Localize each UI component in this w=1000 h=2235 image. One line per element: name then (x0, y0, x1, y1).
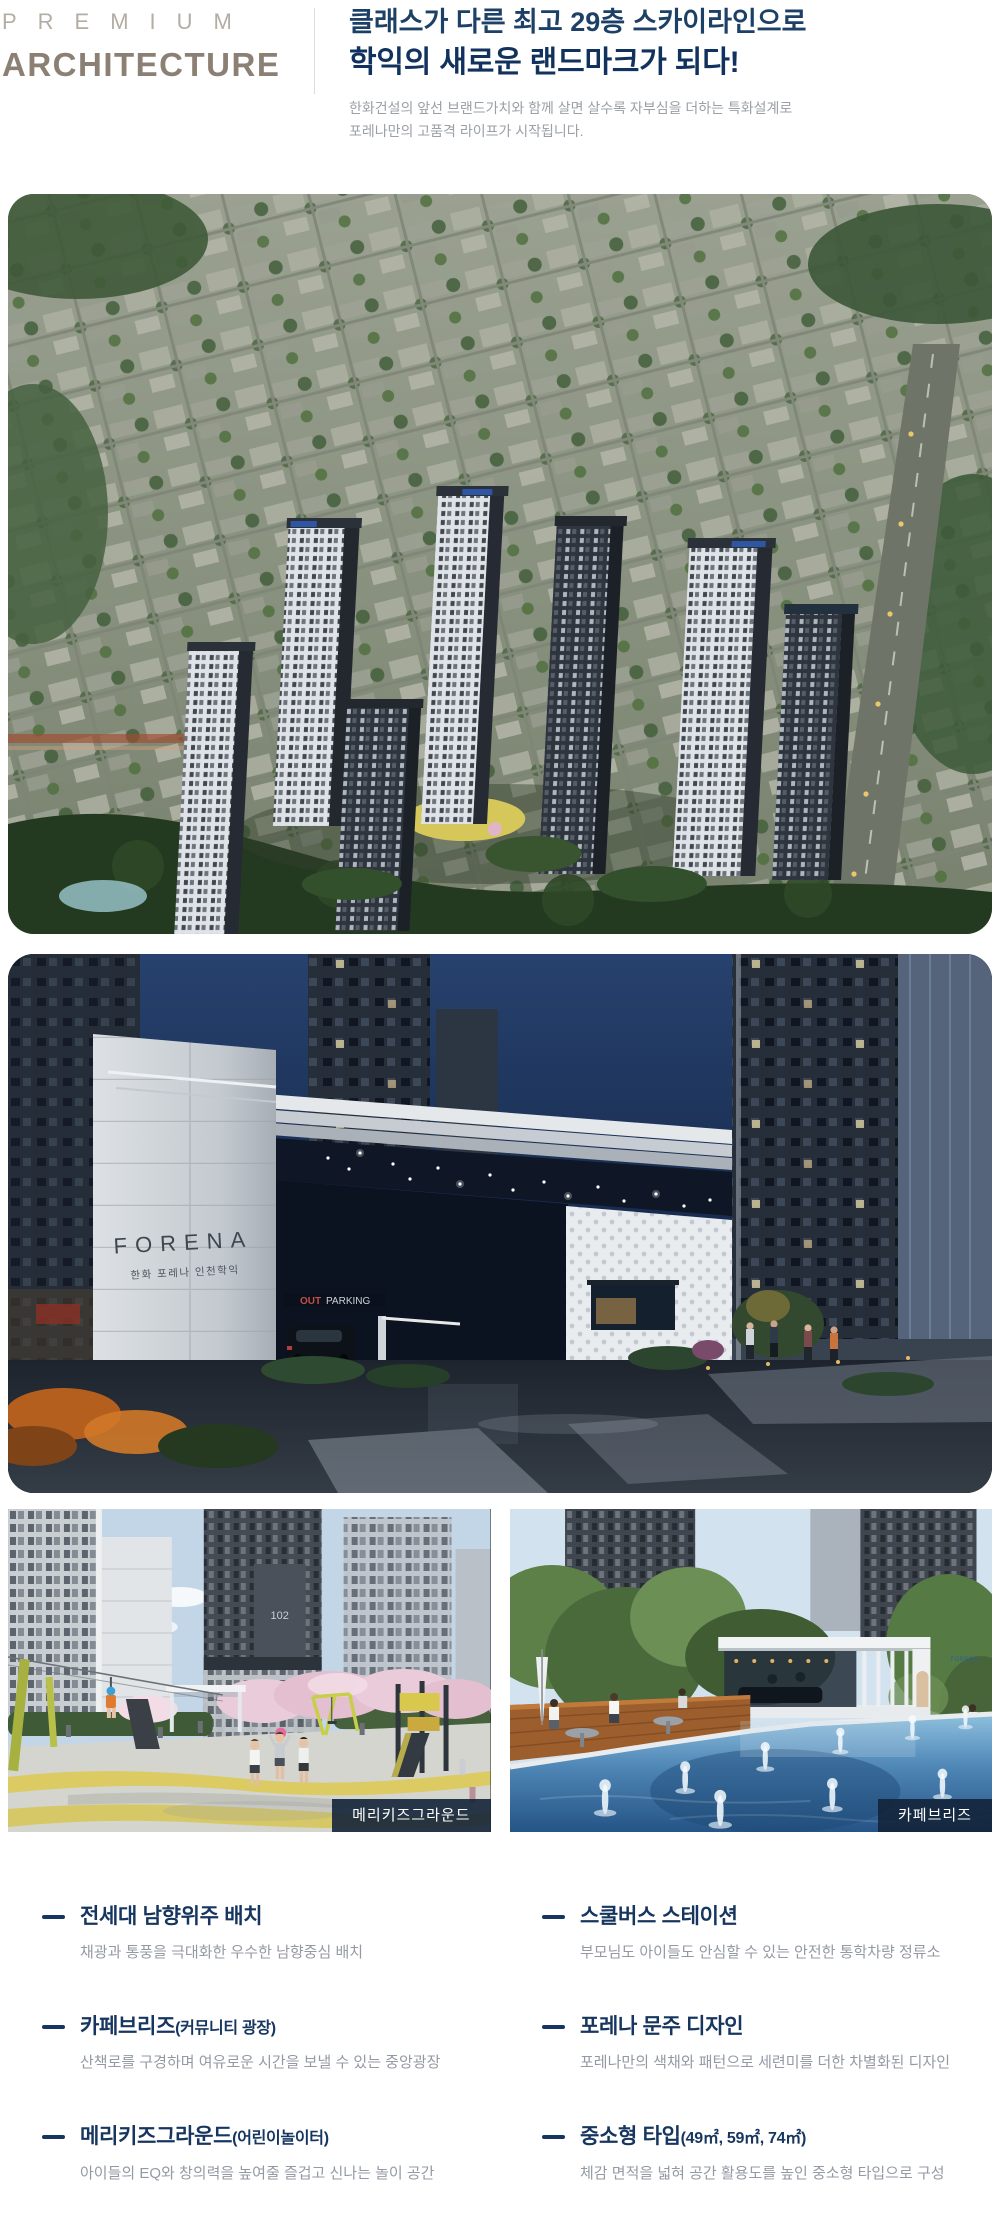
photo-pair-row: 102 (8, 1509, 992, 1832)
dash-icon (542, 1915, 565, 1919)
gate-scene-illustration: OUT PARKING FORENA 한화 포레나 인천학익 (8, 954, 992, 1493)
feature-item-school-bus-station: 스쿨버스 스테이션 부모님도 아이들도 안심할 수 있는 안전한 통학차량 정류… (542, 1904, 1000, 1963)
feature-description: 채광과 통풍을 극대화한 우수한 남향중심 배치 (80, 1942, 363, 1963)
pool-badge: 카페브리즈 (878, 1799, 992, 1832)
aerial-scene-illustration (8, 194, 992, 934)
feature-item-forena-gate-design: 포레나 문주 디자인 포레나만의 색채와 패턴으로 세련미를 더한 차별화된 디… (542, 2014, 1000, 2073)
feature-title-text: 스쿨버스 스테이션 (580, 1905, 738, 1928)
feature-column-left: 전세대 남향위주 배치 채광과 통풍을 극대화한 우수한 남향중심 배치 카페브… (0, 1904, 500, 2235)
playground-badge: 메리키즈그라운드 (332, 1799, 490, 1832)
premium-label: PREMIUM (2, 6, 314, 33)
tower-number-sign: 102 (271, 1610, 289, 1622)
feature-title-text: 카페브리즈 (80, 2015, 175, 2038)
feature-title-text: 포레나 문주 디자인 (580, 2015, 743, 2038)
feature-description: 체감 면적을 넓혀 공간 활용도를 높인 중소형 타입으로 구성 (580, 2163, 945, 2184)
feature-title-text: 중소형 타입 (580, 2125, 681, 2148)
feature-item-unit-types: 중소형 타입(49㎡, 59㎡, 74㎡) 체감 면적을 넓혀 공간 활용도를 … (542, 2124, 1000, 2183)
headline-description-line1: 한화건설의 앞선 브랜드가치와 함께 살면 살수록 자부심을 더하는 특화설계로 (349, 100, 792, 116)
feature-title: 전세대 남향위주 배치 (80, 1904, 363, 1929)
feature-item-merry-kids-ground: 메리키즈그라운드(어린이놀이터) 아이들의 EQ와 창의력을 높여줄 즐겁고 신… (42, 2124, 500, 2183)
entrance-gate-render: OUT PARKING FORENA 한화 포레나 인천학익 (8, 954, 992, 1493)
section-header: PREMIUM ARCHITECTURE 클래스가 다른 최고 29층 스카이라… (0, 0, 1000, 144)
feature-item-south-facing: 전세대 남향위주 배치 채광과 통풍을 극대화한 우수한 남향중심 배치 (42, 1904, 500, 1963)
parking-sign: PARKING (326, 1296, 370, 1307)
feature-title-text: 전세대 남향위주 배치 (80, 1905, 262, 1928)
feature-description: 부모님도 아이들도 안심할 수 있는 안전한 통학차량 정류소 (580, 1942, 940, 1963)
headline-description-line2: 포레나만의 고품격 라이프가 시작됩니다. (349, 123, 584, 139)
dash-icon (42, 1915, 65, 1919)
feature-title-paren: (어린이놀이터) (232, 2130, 329, 2147)
dash-icon (542, 2025, 565, 2029)
feature-title-paren: (커뮤니티 광장) (175, 2020, 276, 2037)
feature-description: 아이들의 EQ와 창의력을 높여줄 즐겁고 신나는 놀이 공간 (80, 2163, 434, 2184)
architecture-label: ARCHITECTURE (2, 48, 314, 81)
feature-title: 스쿨버스 스테이션 (580, 1904, 940, 1929)
playground-scene-illustration: 102 (8, 1509, 491, 1832)
feature-title: 카페브리즈(커뮤니티 광장) (80, 2014, 440, 2039)
playground-render: 102 (8, 1509, 491, 1832)
feature-description: 포레나만의 색채와 패턴으로 세련미를 더한 차별화된 디자인 (580, 2052, 950, 2073)
dash-icon (42, 2025, 65, 2029)
pool-scene-illustration: FORENA (510, 1509, 993, 1832)
dash-icon (42, 2135, 65, 2139)
feature-item-cafe-breeze: 카페브리즈(커뮤니티 광장) 산책로를 구경하며 여유로운 시간을 보낼 수 있… (42, 2014, 500, 2073)
headline-description: 한화건설의 앞선 브랜드가치와 함께 살면 살수록 자부심을 더하는 특화설계로… (349, 97, 806, 142)
aerial-complex-render (8, 194, 992, 934)
headline-line1: 클래스가 다른 최고 29층 스카이라인으로 (349, 6, 806, 40)
feature-list-section: 전세대 남향위주 배치 채광과 통풍을 극대화한 우수한 남향중심 배치 카페브… (0, 1904, 1000, 2235)
feature-title: 메리키즈그라운드(어린이놀이터) (80, 2124, 434, 2149)
feature-title-text: 메리키즈그라운드 (80, 2125, 232, 2148)
pool-cafe-render: FORENA (510, 1509, 993, 1832)
dash-icon (542, 2135, 565, 2139)
pavilion-logo-sign: FORENA (950, 1657, 978, 1663)
header-headline-block: 클래스가 다른 최고 29층 스카이라인으로 학익의 새로운 랜드마크가 되다!… (315, 6, 806, 157)
feature-title-paren: (49㎡, 59㎡, 74㎡) (681, 2130, 806, 2147)
feature-description: 산책로를 구경하며 여유로운 시간을 보낼 수 있는 중앙광장 (80, 2052, 440, 2073)
feature-column-right: 스쿨버스 스테이션 부모님도 아이들도 안심할 수 있는 안전한 통학차량 정류… (500, 1904, 1000, 2235)
headline-line2: 학익의 새로운 랜드마크가 되다! (349, 44, 806, 82)
header-brand-block: PREMIUM ARCHITECTURE (2, 6, 314, 81)
parking-out-sign: OUT (300, 1296, 321, 1307)
feature-title: 포레나 문주 디자인 (580, 2014, 950, 2039)
feature-title: 중소형 타입(49㎡, 59㎡, 74㎡) (580, 2124, 945, 2149)
